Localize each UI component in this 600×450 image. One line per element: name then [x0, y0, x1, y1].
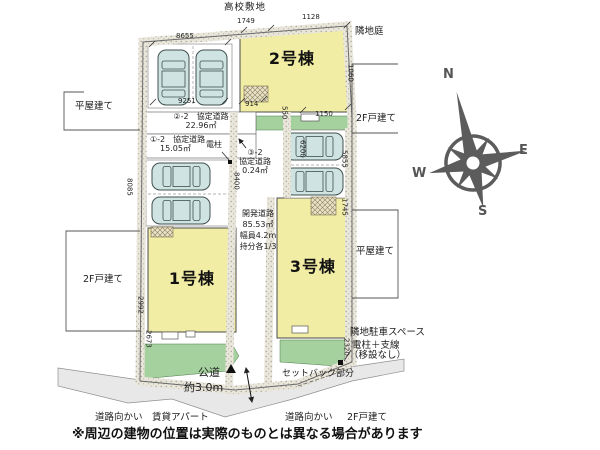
dim-entry-width: 914	[245, 101, 258, 109]
dim-b1-west: 2992	[136, 296, 144, 314]
label-across-right-building: 2F戸建て	[347, 413, 387, 423]
dim-parking-depth: 8400	[232, 172, 240, 190]
label-development-road-width: 幅員4.2m	[230, 232, 286, 241]
label-neighbor-left-lower: 2F戸建て	[83, 275, 123, 285]
label-development-road-share: 持分各1/3	[230, 243, 286, 252]
compass-s-label: S	[478, 205, 487, 219]
label-high-school-grounds: 高校敷地	[215, 3, 275, 13]
dim-top-width: 8655	[176, 33, 194, 41]
label-building-3: 3号棟	[281, 258, 345, 276]
label-public-road: 公道	[198, 367, 220, 379]
label-utility-pole: 電柱	[206, 141, 222, 150]
site-plan: 高校敷地 1749 1128 隣地庭 8655 2号棟 1060 平屋建て 92…	[0, 0, 600, 450]
label-public-road-width: 約3.0m	[184, 382, 223, 394]
entrance-steps-b1	[151, 227, 173, 237]
label-agreement-road-1-area: 15.05㎡	[160, 145, 191, 154]
utility-pole-dot-southeast	[338, 360, 343, 365]
disclaimer-note: ※周辺の建物の位置は実際のものとは異なる場合があります	[72, 428, 423, 442]
label-development-road-area: 85.53㎡	[230, 221, 286, 230]
compass-w-label: W	[412, 167, 426, 181]
dim-b2-top-left: 1749	[237, 18, 255, 26]
dim-east-parking: 5855	[340, 150, 348, 168]
dim-b2-bottom: 1150	[315, 111, 333, 119]
porch-mark	[292, 326, 308, 333]
dim-west-side: 8085	[125, 178, 133, 196]
label-setback: セットバック部分	[282, 370, 354, 380]
entrance-steps-b3	[311, 197, 336, 215]
label-neighbor-right-upper: 2F戸建て	[356, 114, 396, 124]
dim-parking-width: 9251	[178, 98, 196, 106]
label-across-left-building: 賃貸アパート	[152, 413, 209, 423]
dim-b2-top-right: 1128	[302, 14, 320, 22]
label-neighbor-parking: 隣地駐車スペース	[350, 328, 425, 338]
label-development-road: 開発道路	[230, 210, 286, 219]
dim-b2-right-side: 1060	[346, 64, 354, 82]
porch-mark	[186, 331, 195, 337]
dim-green-strip: 550	[280, 106, 288, 119]
green-strip-southeast	[280, 340, 345, 366]
compass-e-label: E	[519, 144, 528, 158]
label-neighbor-right-middle: 平屋建て	[356, 247, 394, 257]
label-across-right: 道路向かい	[285, 413, 333, 423]
dim-road-side: 6200	[298, 140, 306, 158]
compass-n-label: N	[443, 68, 454, 82]
porch-mark	[162, 332, 178, 339]
label-neighbor-garden: 隣地庭	[355, 27, 384, 37]
label-across-left: 道路向かい	[95, 413, 143, 423]
label-agreement-road-2-area: 22.96㎡	[146, 122, 256, 131]
label-building-2: 2号棟	[261, 50, 323, 68]
dim-b1-west-lower: 2673	[144, 330, 152, 348]
dim-east-steps: 1745	[340, 198, 348, 216]
label-neighbor-left-upper: 平屋建て	[75, 102, 113, 112]
label-pole-note-2: （移設なし）	[349, 351, 406, 361]
label-building-1: 1号棟	[160, 270, 224, 288]
